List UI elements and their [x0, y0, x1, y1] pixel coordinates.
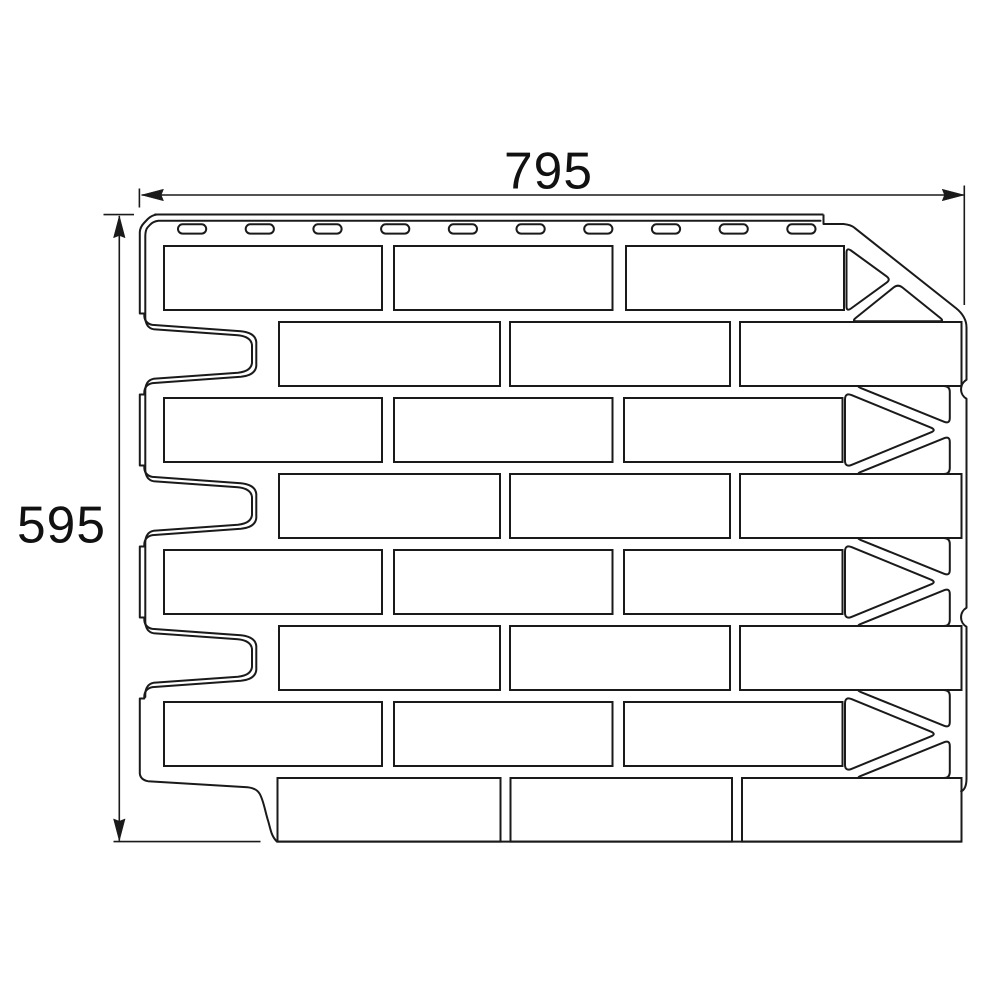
- svg-text:595: 595: [17, 496, 106, 554]
- svg-text:795: 795: [504, 142, 593, 200]
